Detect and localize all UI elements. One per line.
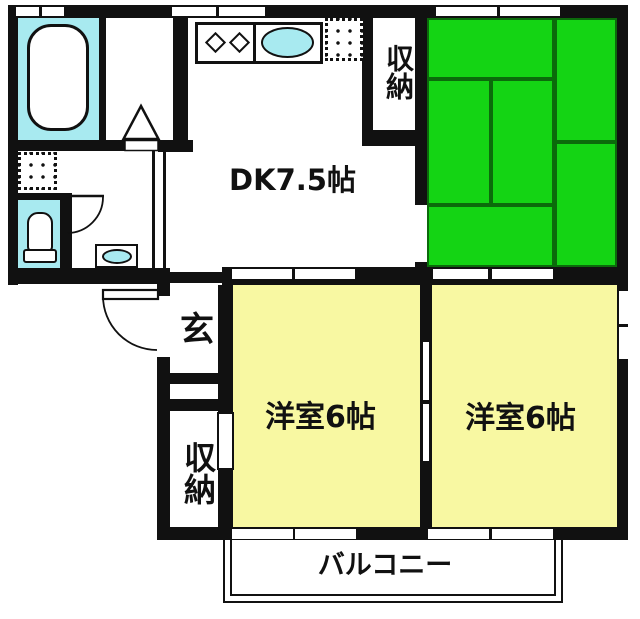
kitchen-sink [261,27,314,58]
floor-plan: DK7.5帖 収納 玄 収納 洋室6帖 洋室6帖 バルコニー [0,0,640,619]
balcony-door-room2 [427,528,490,540]
closet-bottom-door [217,412,234,470]
sliding-door-dk-room1 [231,268,293,280]
window-room2-right [619,291,628,324]
western-room-2-label: 洋室6帖 [438,403,603,435]
wall-closet-bottom-right [218,285,233,527]
toilet-door-arc [67,197,103,233]
balcony-door-room1 [231,528,294,540]
sliding-door-room1-room2 [421,340,431,402]
wall-bottom [157,527,628,540]
balcony-label: バルコニー [300,552,470,580]
balcony-door-room1 [294,528,357,540]
front-door-opening [157,296,170,357]
toilet-base [23,249,57,263]
sliding-door-tatami-room2 [432,268,489,280]
refrigerator-space [325,18,363,61]
window-kitchen [172,7,216,16]
wall-washroom-bottom-a [18,140,125,151]
window-bath [42,7,64,16]
entrance-door-panel [103,290,158,299]
tatami-dk-opening [415,205,427,262]
wall-toilet-right [60,193,72,268]
entrance-step [168,272,222,283]
western-room-1-label: 洋室6帖 [238,402,403,434]
window-tatami [500,7,560,16]
wall-partition-line [163,151,166,268]
dk-label: DK7.5帖 [205,165,380,195]
balcony-door-room2 [491,528,554,540]
bathtub [27,24,89,131]
wall-tatami-left [415,5,427,205]
toilet [27,212,53,252]
wall-right [617,5,628,540]
sliding-door-dk-room1 [294,268,356,280]
wall-left [8,5,18,285]
window-bath [16,7,39,16]
sliding-door-room1-room2 [421,402,431,463]
sliding-door-tatami-room2 [491,268,554,280]
tatami-mat-line [489,77,493,207]
wall-corridor-bottom [8,268,170,284]
wall-partition-line [152,151,155,268]
washing-machine-pan [18,152,57,190]
hand-wash-sink-bowl [102,249,132,264]
wall-bath-washroom [99,15,106,142]
window-kitchen [219,7,265,16]
entrance-door-arc [103,296,157,350]
tatami-mat-line [557,140,617,144]
entrance-label: 玄 [177,313,217,349]
wall-closet-top-left [362,5,373,146]
washroom-door-gap [125,141,158,151]
wall-kitchen-washroom [173,5,188,152]
closet-top-label: 収納 [378,29,412,115]
kitchen-counter-divider [253,22,256,64]
closet-bottom-label: 収納 [174,426,214,520]
window-room2-right [619,327,628,359]
window-tatami [436,7,497,16]
washroom-door-triangle [124,106,159,139]
